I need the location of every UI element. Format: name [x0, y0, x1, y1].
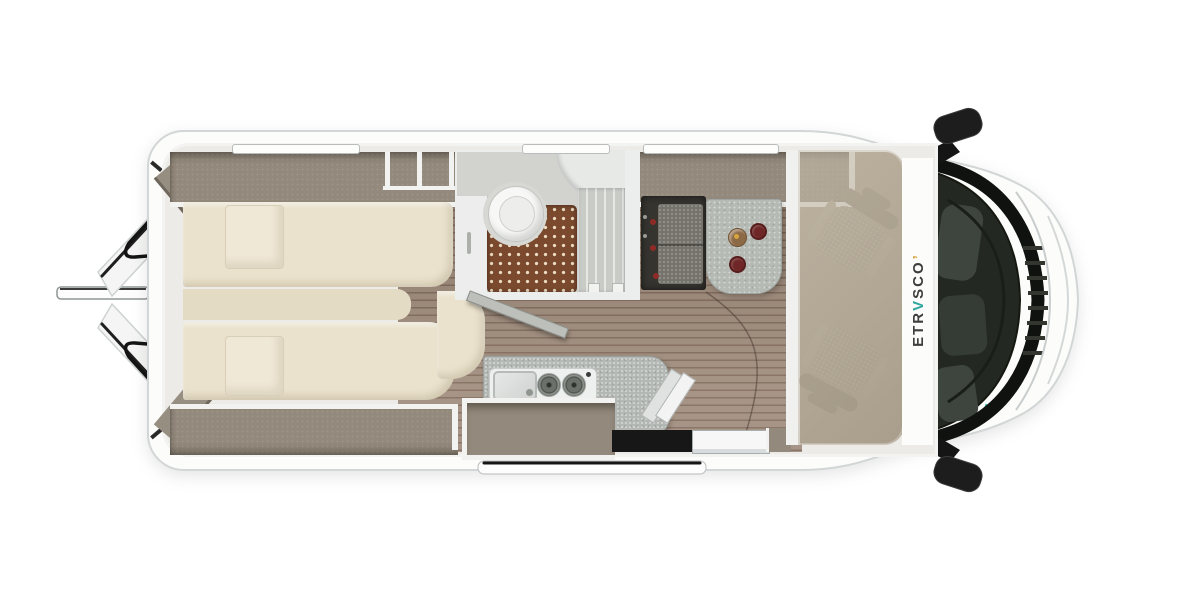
kitchen-lower-shelf — [462, 398, 615, 460]
overhead-lockers-bottom — [170, 404, 458, 455]
brand-logo-accent: V — [910, 299, 927, 311]
shower-glass-door — [577, 188, 625, 293]
toilet-lid — [499, 196, 535, 232]
mug — [750, 223, 767, 240]
faucet — [526, 389, 533, 396]
mug — [729, 256, 746, 273]
skylight — [232, 144, 360, 154]
stove-burner — [562, 373, 586, 397]
locker-end-post — [452, 404, 458, 450]
floorplan-canvas: ETRVSCO’ — [0, 0, 1200, 600]
table-lamp-light — [734, 234, 739, 239]
seatbelt-buckle — [650, 219, 656, 225]
seatbelt-buckle — [653, 273, 659, 279]
brand-logo-post: SCO — [910, 260, 927, 299]
skylight — [643, 144, 779, 154]
headrest-pin — [643, 234, 647, 238]
pillow — [225, 205, 284, 269]
cab-ghost-overlay — [798, 150, 904, 445]
dinette-table — [706, 199, 782, 294]
single-bed-top — [183, 202, 453, 287]
bathroom-wall — [625, 150, 640, 300]
single-bed-bottom — [183, 322, 455, 400]
bed-center-cushion — [183, 289, 411, 320]
locker-divider — [449, 152, 454, 188]
brand-logo-mark: ’ — [910, 253, 927, 259]
locker-divider — [417, 152, 422, 188]
cabinet-handle — [467, 232, 471, 254]
skylight — [522, 144, 610, 154]
headrest-pin — [643, 215, 647, 219]
sliding-door — [478, 461, 706, 474]
brand-logo-pre: ETR — [910, 311, 927, 347]
stove-knob — [586, 372, 591, 377]
locker-divider — [385, 152, 390, 188]
dashboard-silhouette — [938, 293, 988, 356]
pillow — [225, 336, 284, 396]
brand-logo: ETRVSCO’ — [903, 240, 933, 360]
dashboard-silhouette — [932, 363, 979, 423]
bench-cushion-seam — [658, 244, 703, 246]
stove-burner — [537, 373, 561, 397]
seatbelt-buckle — [650, 245, 656, 251]
entry-step-well — [612, 430, 692, 452]
kitchen-sink — [493, 371, 537, 401]
entry-step — [692, 430, 770, 454]
